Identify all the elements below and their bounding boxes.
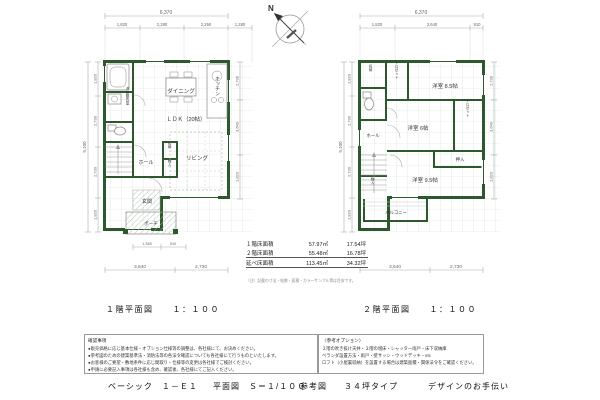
dim-1f-top-total: 6,370 [160,10,173,16]
dim-1f-top-3: 1,280 [235,22,246,27]
area-total-tsubo: 34.32坪 [328,259,366,267]
room-label-room6: 洋室 6帖 [407,124,429,132]
dim-1f-top-2: 2,250 [201,22,212,27]
dims-2f-bottom [360,267,483,273]
note-line: ２階の吹き抜け天井・２階の増床・シャッター雨戸・床下収納庫 [322,345,480,352]
toilet-tank-2f [363,92,371,98]
dim-2f-left-2: 2,730 [347,166,352,177]
area-1f-sqm: 57.97㎡ [288,240,328,248]
floor-plan-sheet: N 6,370 1,820 2,280 2,250 1,280 [0,0,600,400]
dim-2f-left-3: 1,820 [347,209,352,220]
note-line: ●販売価格に応じ基本仕様・オプション仕様等の調整は、各社様にて、お決めください。 [88,345,314,352]
option-notes: 〈参考オプション〉 ２階の吹き抜け天井・２階の増床・シャッター雨戸・床下収納庫 … [318,334,484,374]
dim-1f-right-0: 2,730 [235,75,240,86]
dim-1f-left-1: 2,730 [93,115,98,126]
room-label-hall: ホール [138,160,153,166]
room-label-oshiire: 押入 [456,156,465,163]
north-arrow-head [274,13,283,21]
note-line: ●申請に必要記入事項は各社様も含め、確認後、各社様にてご記入ください。 [88,366,314,373]
area-total-label: 延べ床面積 [246,259,288,267]
option-notes-header: 〈参考オプション〉 [322,337,480,344]
room-label-living: リビング [186,154,209,162]
dim-2f-bottom-1: 2,730 [450,264,462,270]
room-label-closet1: クロゼット [394,60,399,79]
dim-1f-bottom-1: 2,730 [195,264,207,270]
table-total-row: 延べ床面積 113.45㎡ 34.32坪 [246,258,368,268]
title-bar: ベーシック １－Ｅ１ 平面図 Ｓ＝１/１００ 参考図 ３４坪タイプ デザインのお… [0,381,600,397]
drawing-type-label: 平面図 Ｓ＝１/１００ [213,381,306,392]
confirmation-notes-header: 確認事項 [88,337,314,344]
plan-series-label: ベーシック １－Ｅ１ [108,381,198,392]
plan-2f: 6,370 1,820 3,640 910 9,100 1,820 2,730 … [338,10,500,314]
room-label-washroom: 洗面脱衣室 [125,86,130,105]
room-label-porch: ポーチ [144,220,158,226]
dims-1f-top [105,13,252,62]
area-2f-sqm: 55.48㎡ [288,249,328,257]
dim-2f-right-0: 2,730 [489,75,494,86]
north-compass: N [268,4,308,47]
dim-1f-bottom-0: 3,640 [134,264,146,270]
dim-2f-right-1: 3,640 [489,121,494,132]
dims-2f-left [341,62,355,232]
dim-2f-bottom-0: 3,640 [389,264,401,270]
brand-label: デザインのお手伝い [428,381,509,392]
area-total-sqm: 113.45㎡ [288,259,328,267]
room-label-monoire: 物入 [370,177,375,186]
area-1f-label: １階床面積 [246,240,288,248]
north-arrow-line [277,16,304,43]
caption-1f: １階平面図 １：１００ [106,304,220,314]
dim-2f-left-1: 2,730 [347,115,352,126]
dims-2f-top [360,13,483,62]
dim-2f-top-0: 1,820 [372,22,383,27]
room-label-room85: 洋室 8.5帖 [432,82,458,90]
dim-1f-right-2: 1,820 [235,171,240,182]
room-label-storage-2f: 収納 [368,64,373,73]
dim-1f-top-0: 1,820 [117,22,128,27]
room-label-dining: ダイニング [167,87,195,95]
dim-2f-right-2: 1,820 [489,171,494,182]
area-table-note: （注）記載の寸法・帖数・面積・カラーサンプル等は目安です。 [246,279,396,284]
dim-1f-left-0: 1,820 [93,73,98,84]
room-label-closet2: クロゼット [465,98,470,117]
area-2f-label: ２階床面積 [246,249,288,257]
confirmation-notes: 確認事項 ●販売価格に応じ基本仕様・オプション仕様等の調整は、各社様にて、お決め… [84,334,318,374]
dim-2f-top-total: 6,370 [415,10,428,16]
tsubo-type-label: ３４坪タイプ [344,381,398,392]
room-label-storage2: 物入 [167,159,172,168]
room-label-entrance: 玄関 [142,198,152,205]
dim-1f-left-2: 2,730 [93,166,98,177]
reference-label: 参考図 [300,381,327,392]
plan-1f: 6,370 1,820 2,280 2,250 1,280 9,100 1,82… [82,10,252,314]
toilet-icon-2f [365,98,374,110]
floor-area-table: １階床面積 57.97㎡ 17.54坪 ２階床面積 55.48㎡ 16.78坪 … [246,239,368,268]
dim-2f-top-1: 3,640 [427,22,438,27]
toilet-icon-1f [115,127,126,135]
note-line: ロフト（小屋裏収納）を設置する場合は建築面積・関係法令をご確認ください。 [322,359,480,366]
dims-1f-bottom [105,244,228,273]
dim-1f-left-3: 1,820 [93,209,98,220]
caption-2f: ２階平面図 １：１００ [363,304,477,314]
dim-1f-left-total: 9,100 [82,141,87,153]
table-row: ２階床面積 55.48㎡ 16.78坪 [246,248,368,258]
room-label-kitchen: キッチン [214,76,220,96]
note-line: ●参考図のための建築基準法・消防法等の各法令確認についても各社様にて行うものとい… [88,352,314,359]
dim-2f-left-0: 1,820 [347,73,352,84]
dims-1f-left [85,62,101,232]
room-label-room95: 洋室 9.5帖 [412,176,438,184]
note-line: ●お客様のご要望・敷地条件に応じ間取り・仕様等の変更は各社様でご検討ください。 [88,359,314,366]
note-line: ベランダ設置方法・雨戸・壁サッシ・ウッドデッキ・etc [322,352,480,359]
dim-2f-left-total: 9,100 [338,141,343,153]
area-1f-tsubo: 17.54坪 [328,240,366,248]
room-label-balcony: バルコニー [385,210,407,215]
dim-2f-top-2: 910 [474,22,482,27]
dim-1f-bottom-small-1: 910 [170,242,176,246]
dim-1f-right-1: 3,640 [235,121,240,132]
dim-1f-top-1: 2,280 [157,22,168,27]
dim-1f-bottom-small-0: 1,365 [142,242,152,246]
north-label: N [268,4,274,13]
table-row: １階床面積 57.97㎡ 17.54坪 [246,239,368,248]
room-label-ldk: ＬＤＫ（20帖） [166,115,205,123]
room-label-hall-2f: ホール [366,133,380,138]
room-label-storage1: 収納 [167,141,172,150]
area-2f-tsubo: 16.78坪 [328,249,366,257]
